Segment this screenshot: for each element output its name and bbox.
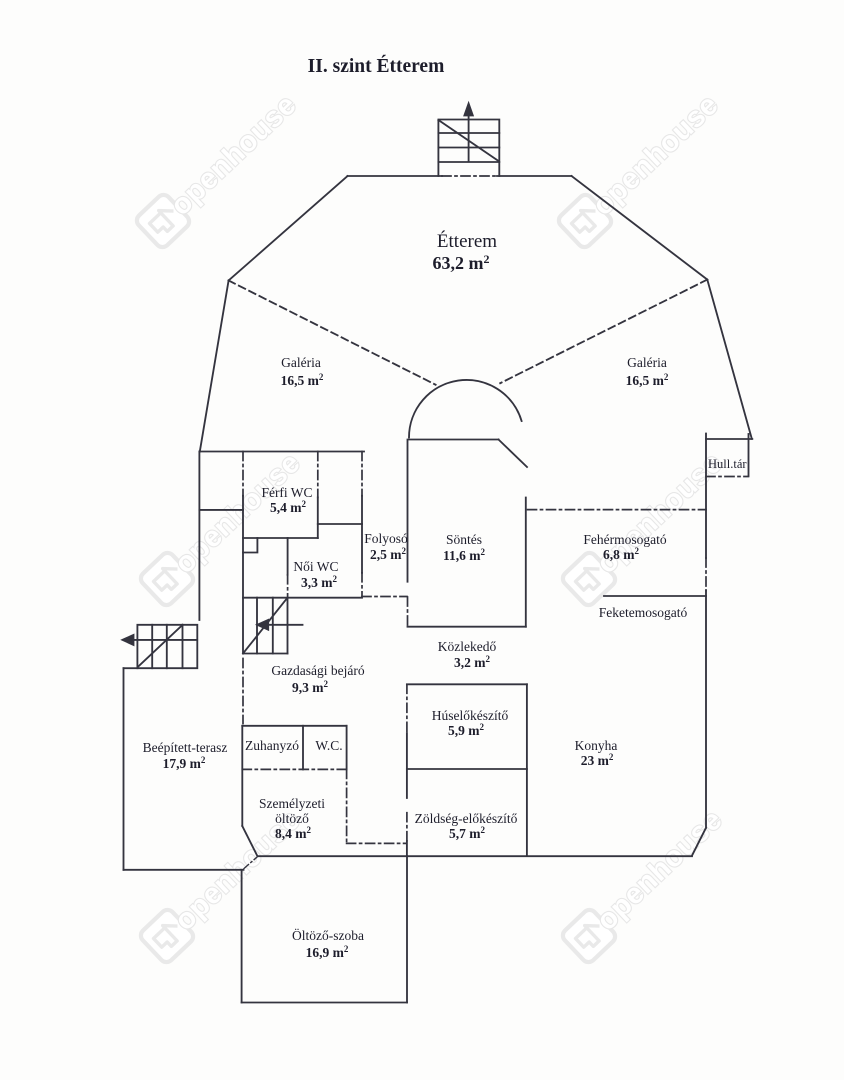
- svg-text:Galéria: Galéria: [627, 355, 667, 370]
- svg-text:16,5 m2: 16,5 m2: [626, 372, 669, 388]
- svg-text:öltöző: öltöző: [275, 811, 309, 826]
- svg-text:Férfi WC: Férfi WC: [261, 485, 312, 500]
- svg-text:Beépített-terasz: Beépített-terasz: [143, 740, 228, 755]
- svg-text:Galéria: Galéria: [281, 355, 321, 370]
- svg-text:Húselőkészítő: Húselőkészítő: [432, 708, 509, 723]
- svg-text:Konyha: Konyha: [575, 738, 618, 753]
- svg-text:Étterem: Étterem: [437, 230, 497, 252]
- svg-text:5,7 m2: 5,7 m2: [449, 825, 486, 841]
- svg-text:63,2 m2: 63,2 m2: [433, 252, 490, 273]
- svg-text:16,9 m2: 16,9 m2: [306, 944, 349, 960]
- svg-text:3,3 m2: 3,3 m2: [301, 574, 338, 590]
- svg-text:11,6 m2: 11,6 m2: [443, 547, 486, 563]
- svg-text:Gazdasági bejáró: Gazdasági bejáró: [271, 663, 365, 678]
- svg-text:Feketemosogató: Feketemosogató: [599, 605, 688, 620]
- svg-text:3,2 m2: 3,2 m2: [454, 654, 491, 670]
- svg-text:9,3 m2: 9,3 m2: [292, 679, 329, 695]
- svg-text:8,4 m2: 8,4 m2: [275, 825, 312, 841]
- svg-text:Folyosó: Folyosó: [364, 531, 408, 546]
- svg-text:Zöldség-előkészítő: Zöldség-előkészítő: [415, 811, 518, 826]
- svg-text:Közlekedő: Közlekedő: [438, 639, 497, 654]
- svg-text:II. szint Étterem: II. szint Étterem: [308, 55, 445, 77]
- svg-text:W.C.: W.C.: [315, 738, 342, 753]
- svg-text:16,5 m2: 16,5 m2: [281, 372, 324, 388]
- svg-text:Hull.tár: Hull.tár: [708, 457, 747, 471]
- svg-text:Öltöző-szoba: Öltöző-szoba: [292, 928, 364, 943]
- svg-text:6,8 m2: 6,8 m2: [603, 546, 640, 562]
- svg-text:Zuhanyzó: Zuhanyzó: [245, 738, 299, 753]
- svg-text:5,9 m2: 5,9 m2: [448, 722, 485, 738]
- svg-text:2,5 m2: 2,5 m2: [370, 546, 407, 562]
- svg-text:Női WC: Női WC: [293, 559, 338, 574]
- svg-text:Fehérmosogató: Fehérmosogató: [583, 532, 666, 547]
- svg-text:5,4 m2: 5,4 m2: [270, 499, 307, 515]
- svg-text:Személyzeti: Személyzeti: [259, 796, 325, 811]
- svg-text:Söntés: Söntés: [446, 532, 482, 547]
- svg-text:17,9 m2: 17,9 m2: [163, 755, 206, 771]
